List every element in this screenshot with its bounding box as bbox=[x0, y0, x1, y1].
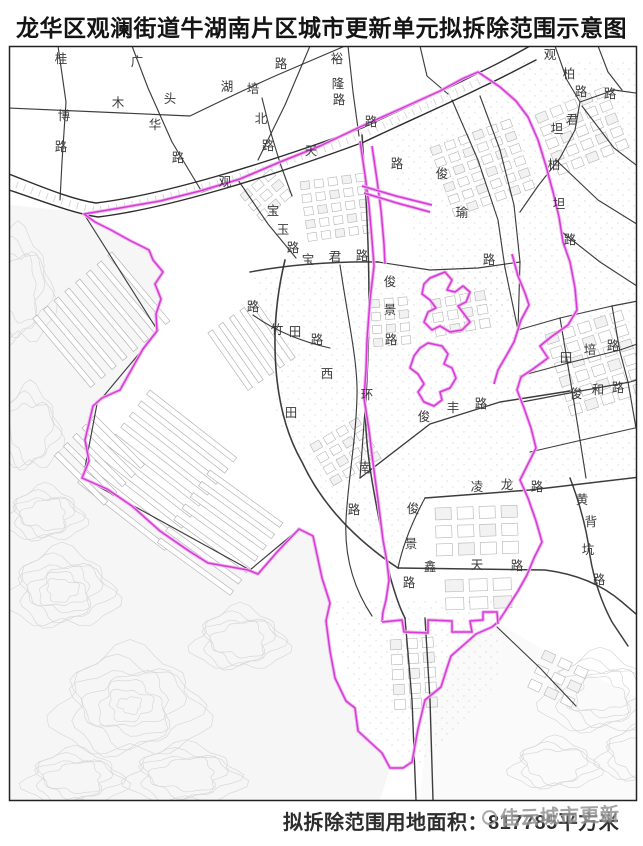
road-label-char: 路 bbox=[55, 139, 68, 154]
road-label-char: 君 bbox=[566, 113, 579, 127]
building bbox=[305, 219, 315, 228]
building bbox=[321, 230, 331, 239]
page-root: 龙华区观澜街道牛湖南片区城市更新单元拟拆除范围示意图 桂木头华路博路广湖培北路路… bbox=[0, 0, 643, 846]
building bbox=[445, 579, 463, 592]
road-label-char: 坦 bbox=[551, 122, 564, 136]
building bbox=[342, 175, 352, 184]
building bbox=[479, 506, 495, 519]
building bbox=[271, 179, 284, 192]
building bbox=[423, 652, 435, 663]
road-label-char: 路 bbox=[356, 248, 369, 263]
road-label-char: 木 bbox=[112, 96, 125, 110]
road-label-char: 君 bbox=[329, 250, 342, 264]
road-label-char: 坑 bbox=[582, 542, 595, 557]
road bbox=[420, 46, 448, 94]
road-label-char: 路 bbox=[403, 575, 416, 590]
building bbox=[446, 597, 464, 610]
road-label-char: 柏 bbox=[548, 157, 561, 172]
road-label-char: 路 bbox=[531, 479, 544, 494]
road-label-char: 天 bbox=[305, 144, 318, 158]
building bbox=[469, 579, 487, 592]
road-label-char: 路 bbox=[247, 299, 260, 314]
road-label-char: 景 bbox=[405, 537, 418, 551]
road bbox=[348, 46, 359, 136]
building bbox=[347, 214, 357, 223]
road-label-char: 环 bbox=[361, 388, 374, 402]
road-label-char: 路 bbox=[333, 92, 346, 107]
watermark-logo-icon bbox=[482, 810, 498, 826]
building bbox=[343, 188, 353, 197]
road-label-char: 俊 bbox=[407, 501, 420, 516]
building bbox=[424, 667, 436, 678]
building bbox=[458, 525, 474, 538]
building bbox=[447, 309, 458, 320]
watermark-text: 佳云城市更新 bbox=[500, 800, 621, 831]
road-label-char: 裕 bbox=[331, 51, 344, 66]
road-label-char: 路 bbox=[275, 56, 288, 71]
road bbox=[58, 46, 66, 200]
road-label-char: 路 bbox=[575, 84, 588, 99]
building bbox=[477, 304, 488, 315]
building bbox=[319, 217, 329, 226]
building bbox=[501, 505, 517, 518]
building bbox=[349, 226, 359, 235]
building bbox=[304, 206, 314, 215]
road-label-char: 路 bbox=[287, 240, 300, 255]
map-canvas: 桂木头华路博路广湖培北路路裕隆路观天路观柏路路君坦柏坦路俊瑜路宝玉路宝君路俊景路… bbox=[0, 0, 643, 846]
building bbox=[502, 541, 518, 554]
road-label-char: 瑜 bbox=[456, 205, 469, 220]
building bbox=[400, 323, 410, 332]
road-label-char: 路 bbox=[511, 558, 524, 573]
road-label-char: 俊 bbox=[570, 386, 583, 401]
road-label-char: 路 bbox=[475, 396, 488, 411]
road-label-char: 培 bbox=[584, 342, 597, 357]
building bbox=[328, 177, 338, 186]
road-label-char: 俊 bbox=[384, 274, 397, 289]
road-label-char: 路 bbox=[604, 86, 617, 101]
building bbox=[260, 189, 273, 202]
building bbox=[401, 336, 411, 345]
building bbox=[479, 318, 490, 329]
building bbox=[307, 232, 317, 241]
building bbox=[251, 179, 264, 192]
road-label-char: 田 bbox=[560, 351, 573, 365]
building bbox=[302, 194, 312, 203]
road-label-char: 北 bbox=[255, 112, 268, 126]
road-label-char: 柏 bbox=[563, 66, 576, 81]
road-label-char: 和 bbox=[592, 383, 605, 397]
road-label-char: 博 bbox=[58, 108, 71, 123]
road-label-char: 路 bbox=[607, 338, 620, 353]
building bbox=[457, 507, 473, 520]
building bbox=[345, 201, 355, 210]
building bbox=[300, 181, 310, 190]
road-label-char: 竹 bbox=[271, 323, 284, 337]
road-label-char: 景 bbox=[384, 303, 397, 317]
building bbox=[470, 597, 488, 610]
watermark: 佳云城市更新 bbox=[482, 800, 621, 832]
building bbox=[373, 338, 383, 347]
building bbox=[493, 578, 511, 591]
road-label-char: 头 bbox=[164, 92, 177, 106]
road-label-char: 凌 bbox=[471, 480, 484, 494]
road-label-char: 宝 bbox=[267, 204, 280, 218]
building bbox=[394, 699, 406, 710]
building bbox=[372, 325, 382, 334]
building bbox=[474, 290, 485, 301]
road-label-char: 俊 bbox=[436, 166, 449, 181]
road-label-char: 培 bbox=[247, 81, 260, 96]
road-label-char: 路 bbox=[564, 232, 577, 247]
road-label-char: 俊 bbox=[418, 409, 431, 424]
building bbox=[316, 192, 326, 201]
building bbox=[391, 654, 403, 665]
road-label-char: 华 bbox=[149, 117, 162, 132]
road-label-char: 观 bbox=[219, 175, 232, 189]
road-label-char: 路 bbox=[172, 150, 185, 165]
building bbox=[502, 523, 518, 536]
road-label-char: 路 bbox=[365, 114, 378, 129]
road-label-char: 西 bbox=[321, 367, 334, 381]
road-label-char: 观 bbox=[544, 48, 557, 62]
road-label-char: 湖 bbox=[221, 79, 234, 94]
road-label-char: 路 bbox=[348, 502, 361, 517]
building bbox=[422, 637, 434, 648]
building bbox=[330, 190, 340, 199]
road-label-char: 路 bbox=[311, 332, 324, 347]
building bbox=[398, 297, 408, 306]
building bbox=[399, 310, 409, 319]
road-label-char: 桂 bbox=[55, 51, 68, 66]
road-label-char: 坦 bbox=[553, 197, 566, 211]
road-label-char: 丰 bbox=[447, 401, 460, 415]
building bbox=[333, 215, 343, 224]
road-label-char: 宝 bbox=[302, 253, 315, 267]
building bbox=[393, 684, 405, 695]
building bbox=[458, 543, 474, 556]
building bbox=[335, 228, 345, 237]
road-label-char: 路 bbox=[262, 138, 275, 153]
road-label-char: 路 bbox=[391, 156, 404, 171]
building bbox=[390, 639, 402, 650]
road-label-char: 南 bbox=[359, 460, 372, 475]
building bbox=[436, 543, 452, 556]
road-label-char: 龙 bbox=[501, 478, 514, 492]
building bbox=[435, 507, 451, 520]
road-label-char: 鑫 bbox=[424, 559, 437, 574]
building bbox=[480, 524, 496, 537]
road-label-char: 田 bbox=[285, 406, 298, 420]
building bbox=[445, 296, 456, 307]
building bbox=[371, 312, 381, 321]
building bbox=[392, 669, 404, 680]
building bbox=[436, 525, 452, 538]
road-label-char: 背 bbox=[585, 515, 598, 529]
road-label-char: 广 bbox=[131, 55, 144, 69]
road-label-char: 田 bbox=[289, 325, 302, 339]
road-label-char: 黄 bbox=[576, 493, 589, 507]
building bbox=[317, 205, 327, 214]
road-label-char: 路 bbox=[612, 380, 625, 395]
road-label-char: 天 bbox=[471, 558, 484, 572]
building bbox=[314, 179, 324, 188]
road-label-char: 隆 bbox=[332, 76, 345, 91]
building bbox=[432, 312, 443, 323]
road-label-char: 路 bbox=[593, 572, 606, 587]
building bbox=[480, 542, 496, 555]
road-label-char: 路 bbox=[385, 332, 398, 347]
road-label-char: 玉 bbox=[277, 223, 290, 237]
building bbox=[386, 324, 396, 333]
road-label-char: 路 bbox=[483, 252, 496, 267]
building bbox=[331, 203, 341, 212]
